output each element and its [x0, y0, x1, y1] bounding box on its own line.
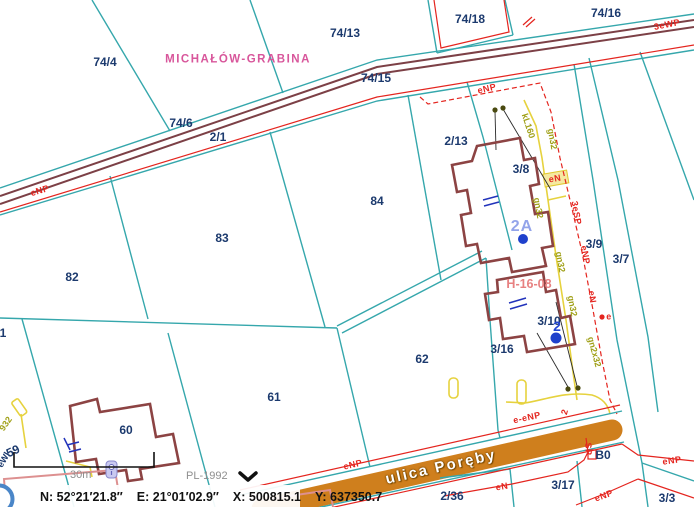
road-casing-maroon [0, 20, 694, 204]
crs-label: PL-1992 [186, 470, 228, 482]
en-label-highlight [543, 170, 569, 187]
coord-y: Y: 637350.7 [315, 490, 382, 504]
gas-lines-yellow [11, 100, 610, 477]
coord-n: N: 52°21′21.8″ [40, 490, 123, 504]
water-point-icon [551, 333, 562, 344]
building-2a [452, 138, 553, 272]
map-vector-layer [0, 0, 694, 507]
building-3-10 [485, 272, 575, 352]
water-point-icon [518, 234, 528, 244]
hydrant-icon [106, 461, 117, 478]
map-canvas[interactable]: 74/474/1374/1874/1674/1574/62/12/133/83/… [0, 0, 694, 507]
coord-x: X: 500815.1 [233, 490, 301, 504]
coord-e: E: 21°01′02.9″ [137, 490, 219, 504]
coordinate-readout: N: 52°21′21.8″E: 21°01′02.9″X: 500815.1Y… [40, 490, 396, 504]
blue-symbols [64, 196, 562, 478]
scalebar-label: 30m [70, 469, 91, 481]
